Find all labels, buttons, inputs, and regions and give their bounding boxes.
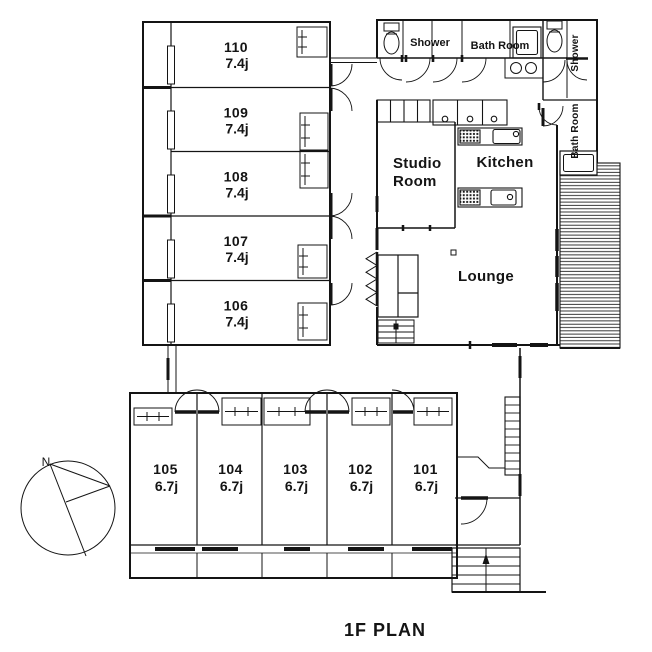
shower-side-label: Shower [570,34,581,71]
background [0,0,652,652]
room-105-size: 6.7j [155,478,178,494]
room-105-number: 105 [153,461,178,477]
room-106-number: 106 [224,298,249,314]
lounge-label: Lounge [458,268,514,285]
room-103-size: 6.7j [285,478,308,494]
floor-plan-canvas: 110 7.4j 109 7.4j 108 7.4j 107 7.4j 106 … [0,0,652,652]
floor-plan-page: 110 7.4j 109 7.4j 108 7.4j 107 7.4j 106 … [0,0,652,652]
room-109-size: 7.4j [225,121,248,137]
room-104-number: 104 [218,461,243,477]
stove-icon-2 [460,190,480,205]
plan-title: 1F PLAN [344,620,426,640]
room-109-number: 109 [224,105,249,121]
room-108-size: 7.4j [225,185,248,201]
room-103-number: 103 [283,461,308,477]
room-107-number: 107 [224,233,249,249]
deck [560,151,620,348]
room-110-size: 7.4j [225,55,248,71]
room-108-number: 108 [224,169,249,185]
kitchen-label: Kitchen [476,154,533,171]
studio-room-label-1: Studio [393,155,441,172]
bath-room-top-label: Bath Room [471,40,530,52]
room-102-size: 6.7j [350,478,373,494]
room-102-number: 102 [348,461,373,477]
stove-icon [460,130,480,143]
shower-top-label: Shower [410,37,450,49]
room-106-size: 7.4j [225,314,248,330]
room-101-size: 6.7j [415,478,438,494]
room-107-size: 7.4j [225,249,248,265]
bath-room-side-label: Bath Room [570,103,581,158]
room-110-number: 110 [224,39,248,55]
studio-room-label-2: Room [393,173,437,190]
north-label: N [42,455,51,469]
room-104-size: 6.7j [220,478,243,494]
room-101-number: 101 [413,461,438,477]
